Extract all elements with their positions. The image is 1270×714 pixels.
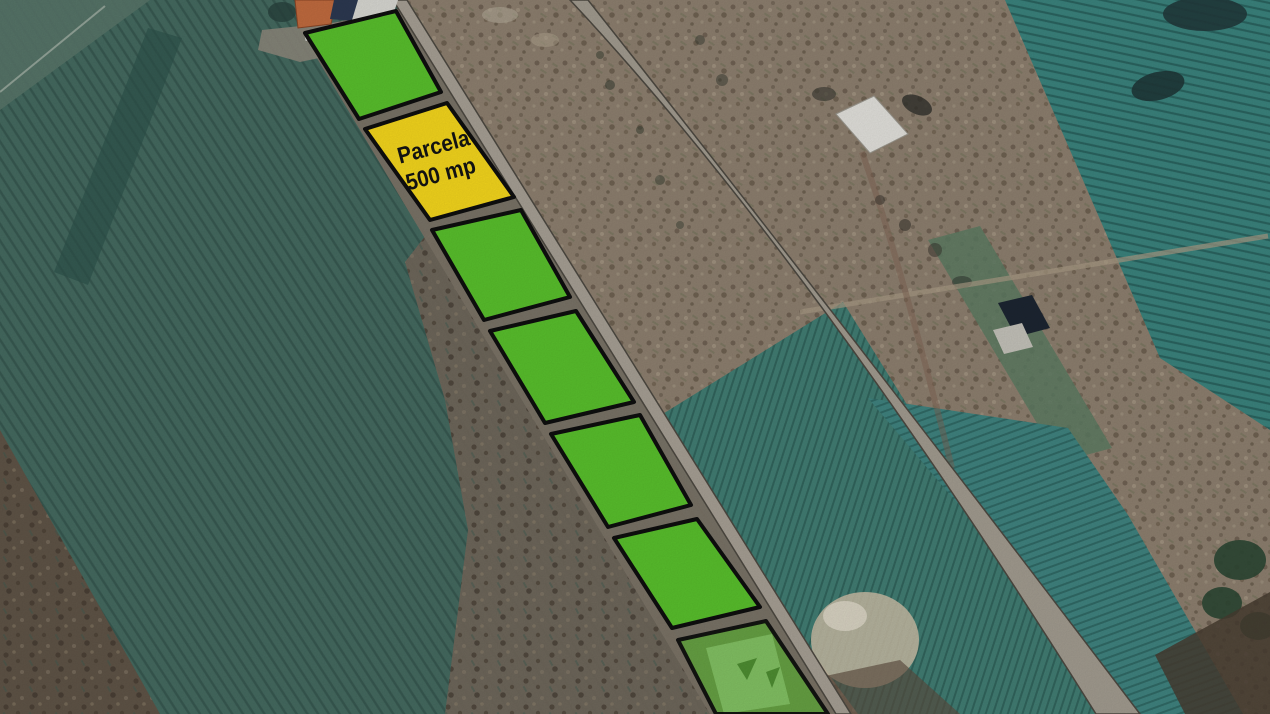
satellite-map-canvas: Parcela 500 mp [0, 0, 1270, 714]
photo-grain [0, 0, 1270, 714]
satellite-map: Parcela 500 mp [0, 0, 1270, 714]
